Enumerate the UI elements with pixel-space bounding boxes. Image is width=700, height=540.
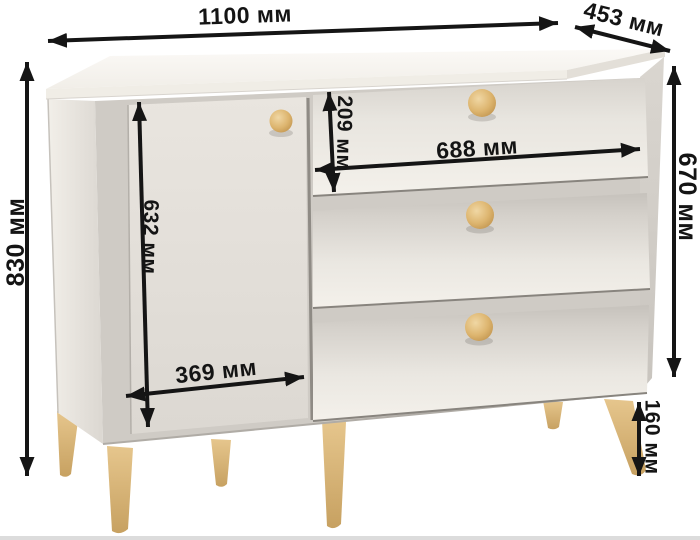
dim-depth: 453 мм <box>575 0 670 51</box>
drawer-3-knob <box>465 313 493 341</box>
dim-total-height: 830 мм <box>2 62 30 476</box>
dim-door-height-label: 632 мм <box>138 199 163 275</box>
dim-leg-height-label: 160 мм <box>641 400 664 475</box>
drawer-1-knob <box>468 89 496 117</box>
dim-total-width: 1100 мм <box>48 0 558 41</box>
leg-front-middle <box>322 420 346 528</box>
dim-body-height-label: 670 мм <box>673 153 700 242</box>
dim-body-height: 670 мм <box>673 66 700 377</box>
bottom-border-strip <box>0 536 700 540</box>
dim-total-height-label: 830 мм <box>2 198 30 287</box>
cabinet-left-side <box>48 99 103 444</box>
dim-depth-label: 453 мм <box>581 0 667 42</box>
commode-dimension-drawing: 1100 мм 453 мм 830 мм 670 мм 209 мм 688 … <box>0 0 700 540</box>
dim-top-drawer-height-label: 209 мм <box>332 95 356 170</box>
dimension-diagram: 1100 мм 453 мм 830 мм 670 мм 209 мм 688 … <box>0 0 700 540</box>
leg-rear-middle <box>211 439 231 487</box>
dim-drawer-width-label: 688 мм <box>435 132 518 163</box>
dim-total-width-label: 1100 мм <box>198 0 293 29</box>
dim-leg-height: 160 мм <box>639 400 664 476</box>
drawer-2-knob <box>466 201 494 229</box>
leg-rear-right <box>543 401 563 429</box>
door-knob <box>270 110 293 133</box>
dim-total-width-arrow <box>48 23 558 41</box>
leg-front-left <box>107 446 133 533</box>
